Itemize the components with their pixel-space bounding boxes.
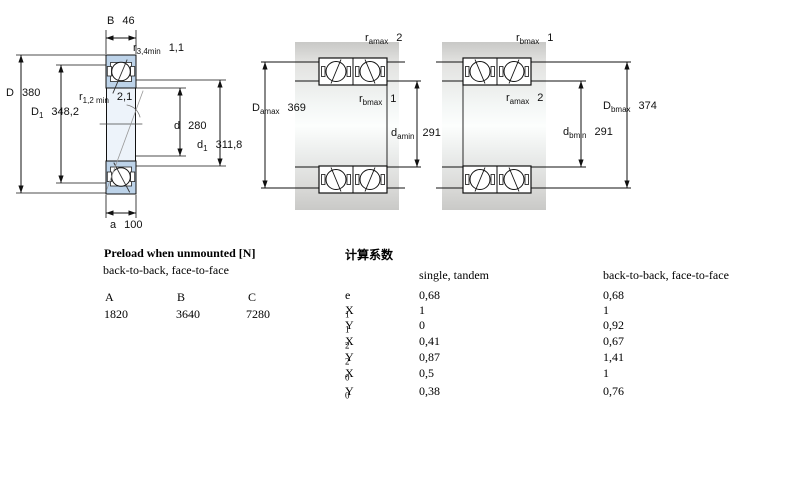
dim-value: 280 [188, 120, 206, 132]
dim-label-ramax-fig3: ramax2 [506, 92, 543, 104]
dim-value: 100 [124, 219, 142, 231]
dim-base: B [107, 15, 114, 27]
factor-value-paired: 1,41 [603, 350, 624, 365]
dim-sub: 1 [39, 111, 43, 120]
factors-title: 计算系数 [345, 246, 393, 263]
factor-value-single: 0,5 [419, 366, 434, 381]
dim-value: 369 [288, 102, 306, 114]
preload-value-C: 7280 [246, 307, 270, 322]
dim-base: D [31, 106, 39, 118]
dim-sub: 1,2 min [83, 96, 109, 105]
preload-header-A: A [105, 290, 114, 305]
factor-value-paired: 0,68 [603, 288, 624, 303]
dim-sub: amax [260, 107, 280, 116]
dim-base: D [6, 87, 14, 99]
dim-value: 311,8 [216, 139, 243, 151]
factor-value-single: 0,41 [419, 334, 440, 349]
figure1-single-bearing [100, 55, 143, 194]
dim-label-Dbmax: Dbmax374 [603, 100, 657, 112]
factor-value-single: 0,87 [419, 350, 440, 365]
dim-value: 2 [537, 92, 543, 104]
dim-sub: bmax [611, 105, 631, 114]
dim-base: D [603, 100, 611, 112]
factor-value-single: 0,38 [419, 384, 440, 399]
dim-sub: amax [510, 97, 530, 106]
dim-label-d1: d1311,8 [197, 139, 242, 151]
factor-symbol: X2 [345, 334, 350, 349]
dim-label-dbmin: dbmin291 [563, 126, 613, 138]
dim-base: d [174, 120, 180, 132]
dim-label-rbmax-fig2: rbmax1 [359, 93, 396, 105]
dim-value: 380 [22, 87, 40, 99]
dim-label-r12min: r1,2 min2,1 [79, 91, 132, 103]
factor-value-single: 0,68 [419, 288, 440, 303]
dim-sub: bmax [363, 98, 383, 107]
dim-label-damin: damin291 [391, 127, 441, 139]
dim-value: 2,1 [117, 91, 132, 103]
factor-symbol: X0 [345, 366, 350, 381]
dim-value: 1 [547, 32, 553, 44]
preload-value-A: 1820 [104, 307, 128, 322]
factor-symbol: Y1 [345, 318, 350, 333]
dim-label-D: D380 [6, 87, 40, 99]
factors-col2-header: back-to-back, face-to-face [603, 268, 729, 283]
preload-header-C: C [248, 290, 256, 305]
dim-value: 1 [390, 93, 396, 105]
dim-sub: 1 [203, 144, 207, 153]
dim-value: 291 [594, 126, 612, 138]
dim-sub: 3,4min [137, 47, 161, 56]
dim-label-D1: D1348,2 [31, 106, 79, 118]
dim-sub: amin [397, 132, 414, 141]
factor-value-paired: 0,67 [603, 334, 624, 349]
factor-symbol: Y0 [345, 384, 350, 399]
dim-sub: bmax [520, 37, 540, 46]
factor-value-paired: 1 [603, 366, 609, 381]
ball-top [112, 62, 131, 81]
preload-value-B: 3640 [176, 307, 200, 322]
factor-value-paired: 0,92 [603, 318, 624, 333]
factor-value-paired: 0,76 [603, 384, 624, 399]
factor-value-single: 1 [419, 303, 425, 318]
dim-value: 1,1 [169, 42, 184, 54]
dim-label-r34min: r3,4min1,1 [133, 42, 184, 54]
dim-label-B: B46 [107, 15, 135, 27]
dim-value: 46 [122, 15, 134, 27]
dim-label-ramax-fig2: ramax2 [365, 32, 402, 44]
dim-value: 291 [422, 127, 440, 139]
dim-sub: amax [369, 37, 389, 46]
factor-value-single: 0 [419, 318, 425, 333]
factor-value-paired: 1 [603, 303, 609, 318]
factor-symbol: X1 [345, 303, 350, 318]
dim-base: D [252, 102, 260, 114]
dim-value: 348,2 [51, 106, 79, 118]
dim-value: 2 [396, 32, 402, 44]
dim-value: 374 [639, 100, 657, 112]
preload-header-B: B [177, 290, 185, 305]
bearing-datasheet-page: B46 r3,4min1,1 D380 r1,2 min2,1 D1348,2 … [0, 0, 800, 500]
dim-base: a [110, 219, 116, 231]
factors-col1-header: single, tandem [419, 268, 489, 283]
dim-label-rbmax-fig3: rbmax1 [516, 32, 553, 44]
dim-label-Damax: Damax369 [252, 102, 306, 114]
preload-subtitle: back-to-back, face-to-face [103, 263, 229, 278]
factor-symbol: Y2 [345, 350, 350, 365]
preload-title: Preload when unmounted [N] [104, 246, 255, 261]
dim-sub: bmin [569, 131, 586, 140]
dim-label-d: d280 [174, 120, 206, 132]
dim-label-a: a100 [110, 219, 142, 231]
